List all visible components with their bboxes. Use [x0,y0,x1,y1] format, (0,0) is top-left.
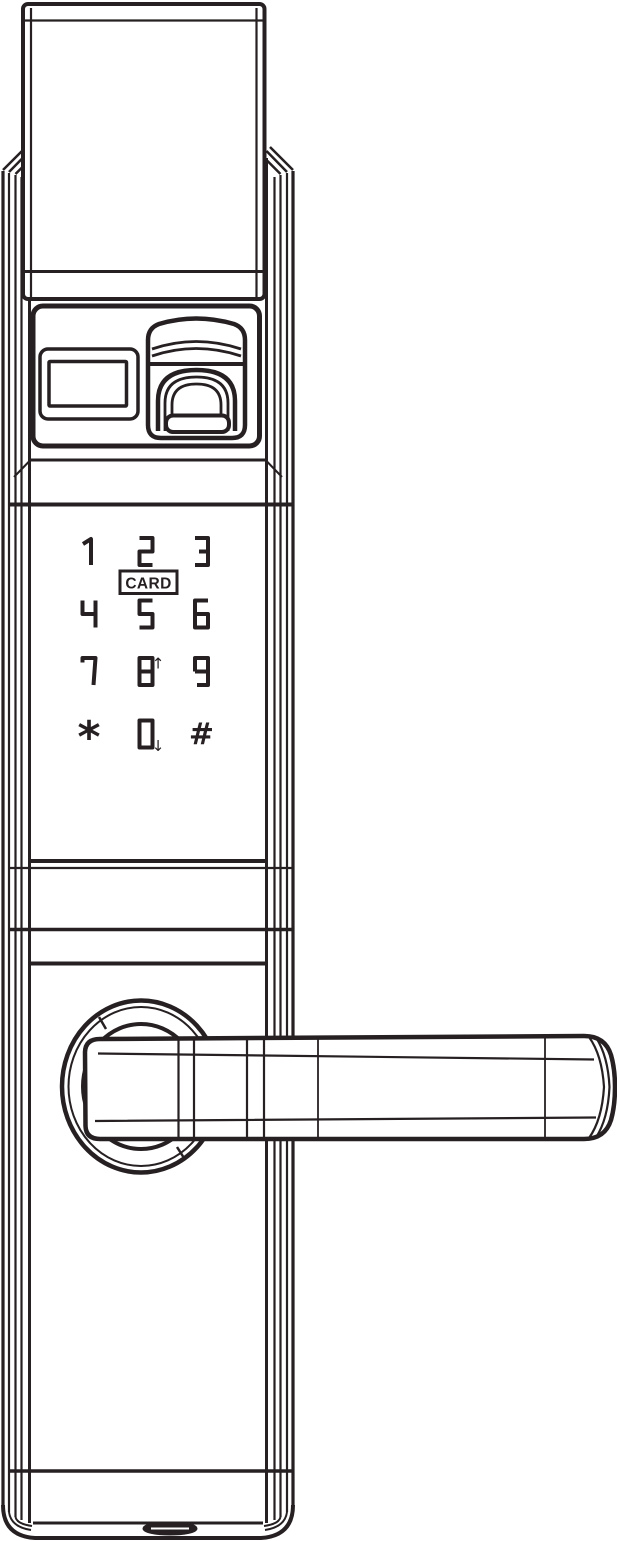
body-dividers [9,460,292,1471]
key-star[interactable]: * [77,712,100,763]
key-9[interactable] [195,658,208,685]
key-6[interactable] [195,601,208,628]
top-block [23,4,265,299]
key-5[interactable] [140,601,153,628]
lock-drawing: ↑*↓#CARD [0,0,617,1541]
key-3[interactable] [195,538,208,565]
body-bottom [3,1505,293,1538]
key-1[interactable] [83,539,91,565]
svg-text:↑: ↑ [152,655,165,673]
body-right-edges [267,147,294,1523]
svg-text:#: # [189,717,214,752]
key-2[interactable] [140,538,153,565]
body-left-edges [3,147,30,1523]
key-card[interactable]: CARD [120,571,177,594]
key-8[interactable]: ↑ [140,655,165,686]
card-key-label: CARD [125,576,171,593]
key-0[interactable]: ↓ [140,721,165,756]
svg-text:*: * [77,712,100,763]
lock-drawing-canvas: ↑*↓#CARD [0,0,617,1541]
key-4[interactable] [83,601,96,628]
svg-text:↓: ↓ [152,737,165,755]
key-hash[interactable]: # [189,717,214,752]
keypad: ↑*↓#CARD [77,538,214,763]
fingerprint-base [166,416,229,433]
info-panel [33,306,260,446]
bottom-port [144,1523,196,1534]
door-handle[interactable] [85,1036,615,1139]
key-7[interactable] [83,658,96,685]
